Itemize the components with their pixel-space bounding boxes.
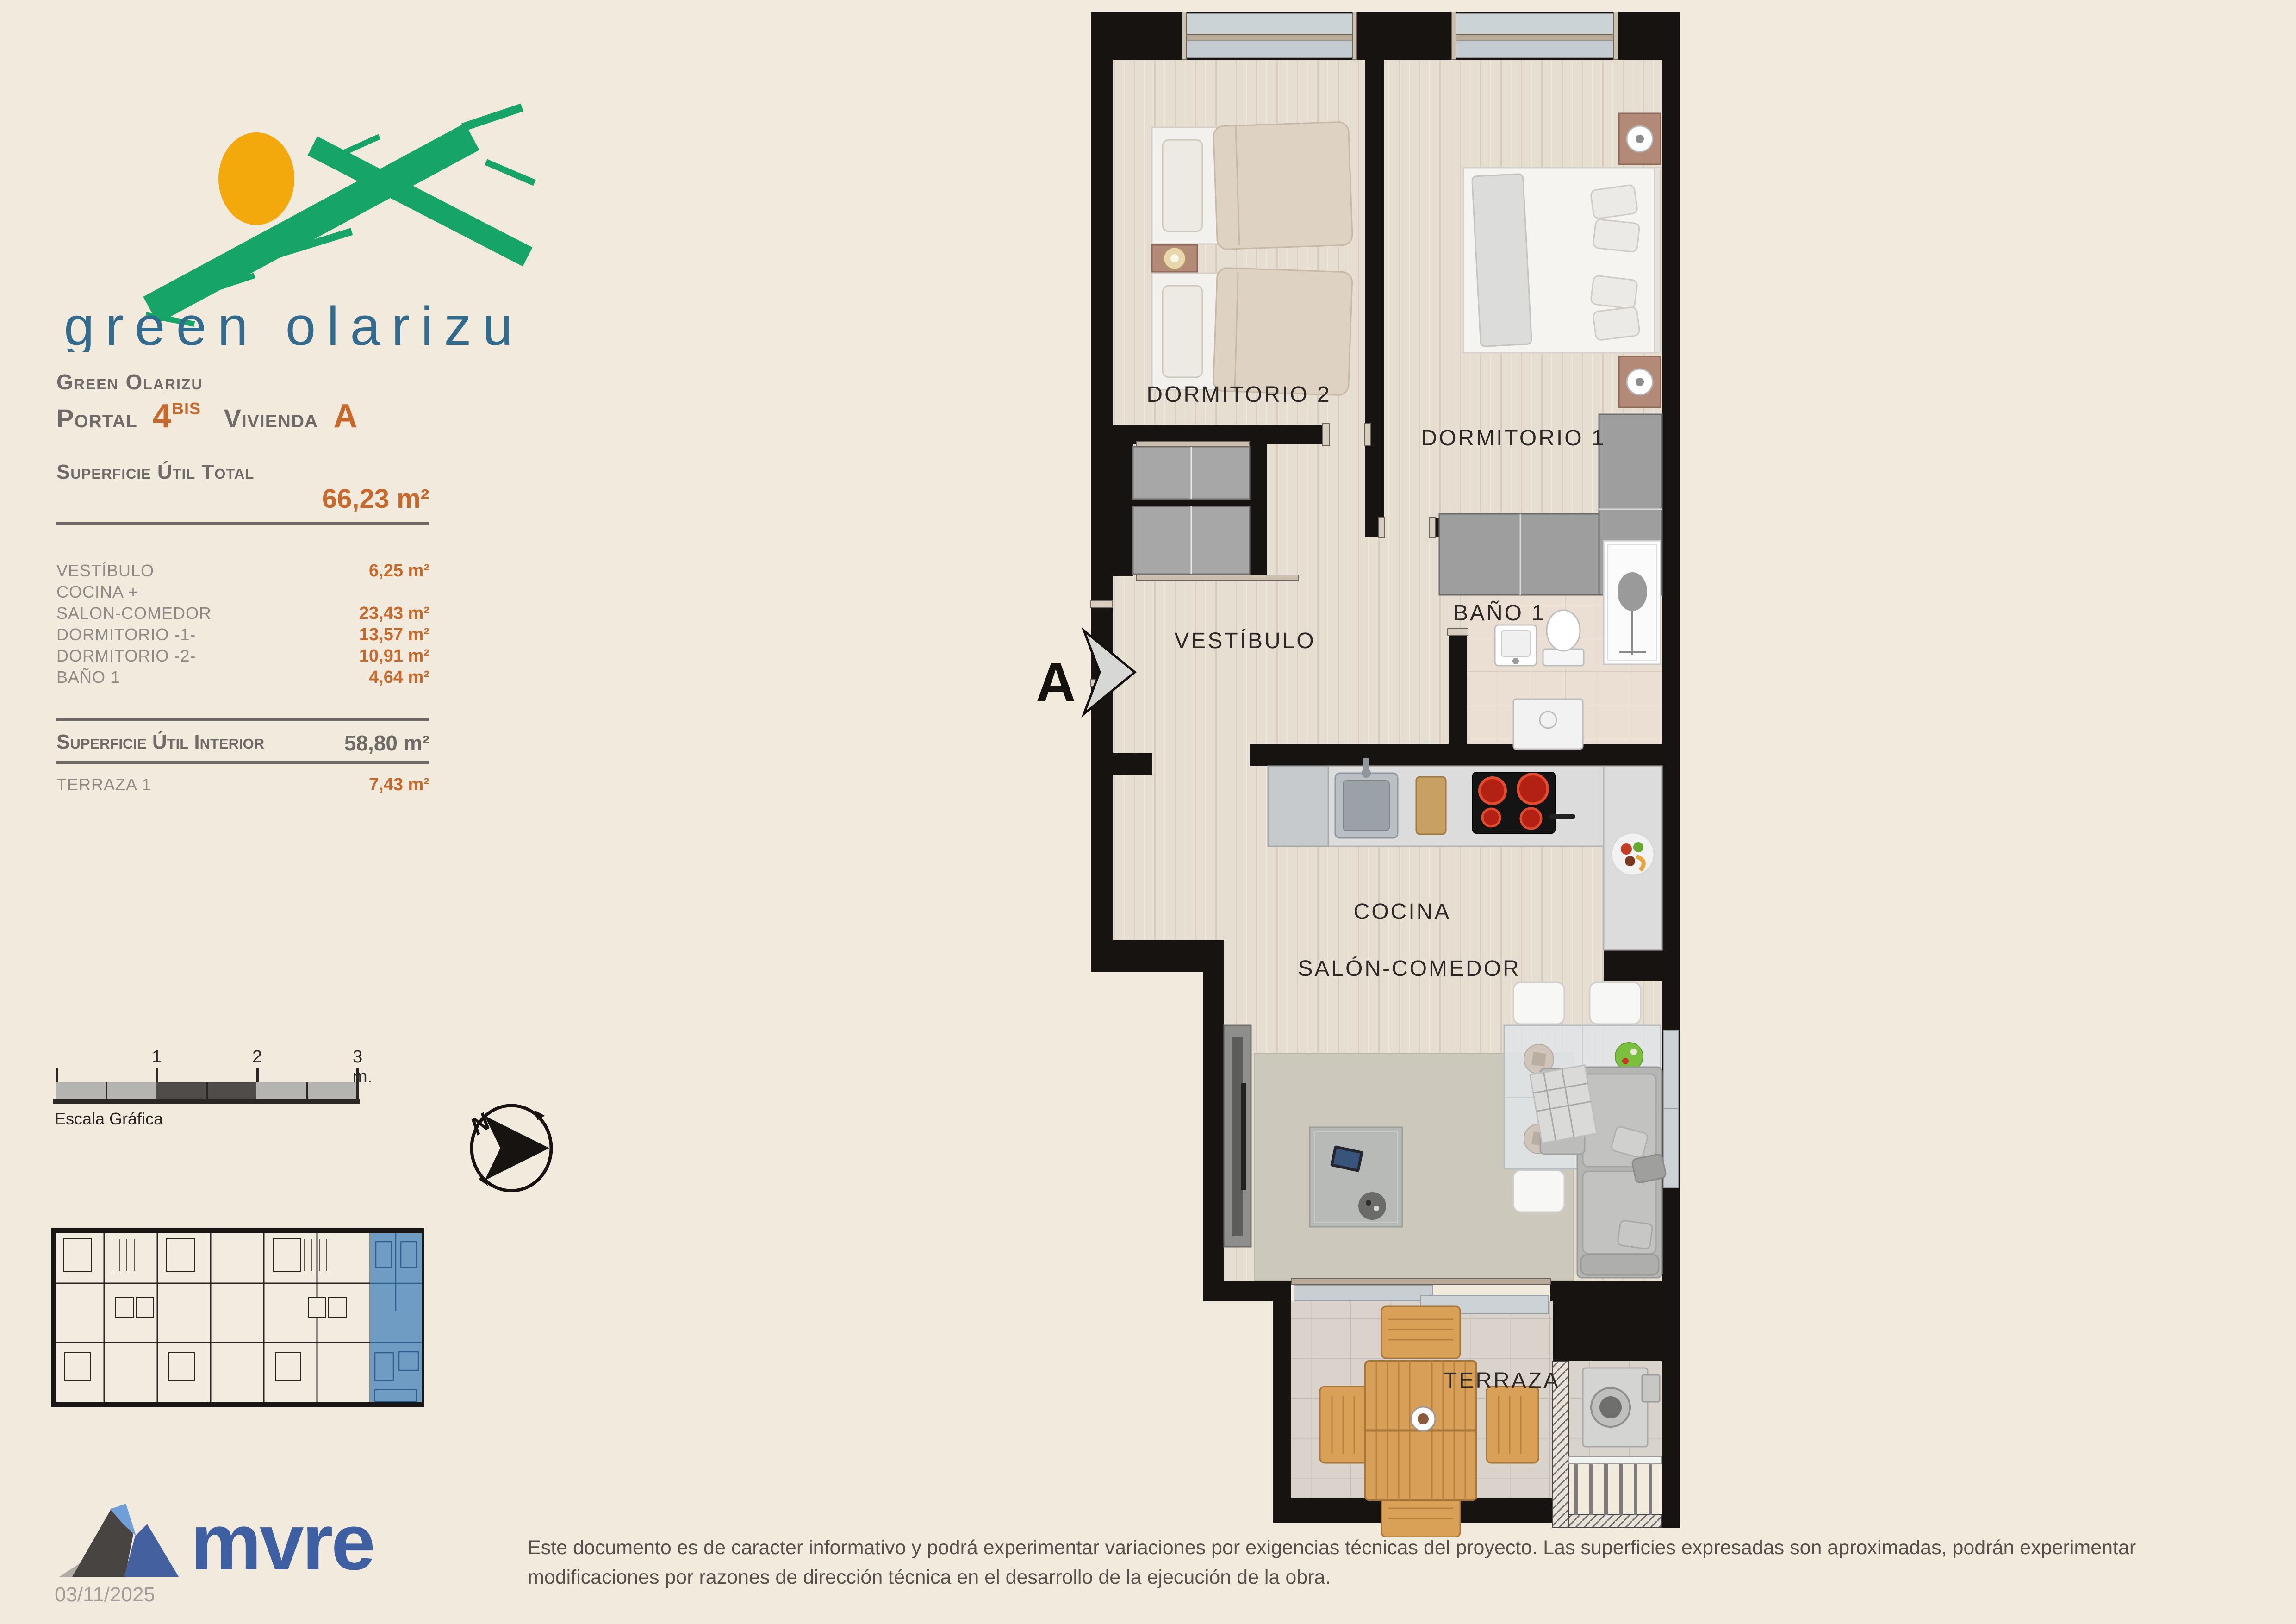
portal-number: 4 xyxy=(153,398,172,435)
floor-plan: A DORMITORIO 2 DORMITORIO 1 VESTÍBULO BA… xyxy=(1032,5,1680,1537)
bed-single-1 xyxy=(1152,122,1353,250)
nightstand xyxy=(1619,113,1661,164)
oven-appliance xyxy=(1513,699,1583,749)
scale-baseline xyxy=(53,1099,360,1104)
logo-brush-icon xyxy=(146,107,535,324)
scale-subtick xyxy=(306,1082,308,1099)
highlighted-unit xyxy=(370,1233,422,1402)
area-row-label: COCINA + xyxy=(56,582,138,602)
terrace-railing xyxy=(1569,1456,1662,1515)
area-row-value: 13,57 m² xyxy=(359,625,429,645)
area-row: COCINA + xyxy=(56,582,429,604)
logo-wordmark: green olarizu xyxy=(64,296,524,352)
fruit-plate xyxy=(1612,833,1654,875)
scale-subtick xyxy=(206,1082,208,1099)
label-terraza: TERRAZA xyxy=(1444,1368,1560,1393)
interior-surface-row: Superficie Útil Interior 58,80 m² xyxy=(56,731,429,752)
scale-tick-label: 3 m. xyxy=(353,1047,372,1087)
area-row: SALON-COMEDOR23,43 m² xyxy=(56,604,429,625)
surface-total-value: 66,23 m² xyxy=(56,483,429,514)
label-vestibulo: VESTÍBULO xyxy=(1174,629,1315,653)
bathroom-sink xyxy=(1495,625,1537,666)
washing-machine xyxy=(1583,1368,1660,1447)
north-compass: N xyxy=(465,1102,555,1192)
surface-total-heading: Superficie Útil Total xyxy=(56,461,254,484)
compass-needle-icon xyxy=(485,1116,549,1181)
nightstand xyxy=(1152,245,1197,272)
mvre-wordmark: mvre xyxy=(191,1504,373,1580)
date-stamp: 03/11/2025 xyxy=(55,1583,155,1606)
portal-suffix: BIS xyxy=(172,399,201,418)
unit-title: Portal 4BIS Vivienda A xyxy=(56,397,358,435)
vivienda-label: Vivienda xyxy=(224,404,318,433)
coffee-table xyxy=(1310,1127,1402,1227)
area-row-value: 10,91 m² xyxy=(359,646,429,666)
floor-overview-plan xyxy=(51,1228,424,1407)
label-salon-comedor: SALÓN-COMEDOR xyxy=(1298,956,1520,981)
nightstand xyxy=(1619,356,1661,407)
area-row-label: BAÑO 1 xyxy=(56,668,120,687)
area-row: DORMITORIO -2-10,91 m² xyxy=(56,646,429,668)
bed-single-2 xyxy=(1152,268,1352,395)
divider-line xyxy=(56,761,429,764)
area-row-label: SALON-COMEDOR xyxy=(56,604,212,623)
area-row: DORMITORIO -1-13,57 m² xyxy=(56,625,429,646)
scale-subtick xyxy=(106,1082,107,1099)
section-marker-letter: A xyxy=(1036,651,1076,713)
interior-value: 58,80 m² xyxy=(344,731,429,756)
disclaimer-text: Este documento es de caracter informativ… xyxy=(528,1533,2259,1592)
terrace-row: TERRAZA 1 7,43 m² xyxy=(56,775,429,796)
bedroom1-window xyxy=(1451,12,1618,59)
terrace-edge-hatch xyxy=(1569,1515,1662,1528)
area-row-value: 23,43 m² xyxy=(359,604,429,624)
terrace-value: 7,43 m² xyxy=(369,775,429,795)
tv-unit xyxy=(1224,1025,1251,1247)
mvre-logo: mvre xyxy=(56,1504,407,1580)
divider-line xyxy=(56,718,429,721)
scale-tick-label: 1 xyxy=(152,1047,162,1067)
area-row-label: DORMITORIO -1- xyxy=(56,625,196,644)
project-title: Green Olarizu xyxy=(56,369,203,394)
bed-double xyxy=(1463,168,1661,353)
label-cocina: COCINA xyxy=(1354,899,1451,924)
bedroom2-window xyxy=(1182,12,1357,59)
divider-line xyxy=(56,522,429,525)
label-dormitorio-1: DORMITORIO 1 xyxy=(1421,426,1605,450)
scale-tick-label: 2 xyxy=(252,1047,262,1067)
toilet xyxy=(1543,610,1584,666)
scale-tick xyxy=(356,1068,359,1099)
scale-caption: Escala Gráfica xyxy=(55,1109,163,1129)
label-dormitorio-2: DORMITORIO 2 xyxy=(1146,382,1331,407)
cutting-board xyxy=(1416,777,1446,834)
terrace-label: TERRAZA 1 xyxy=(56,775,151,794)
area-row-label: DORMITORIO -2- xyxy=(56,646,196,666)
area-row: VESTÍBULO6,25 m² xyxy=(56,561,429,582)
portal-label: Portal xyxy=(56,404,137,433)
label-bano-1: BAÑO 1 xyxy=(1453,600,1546,625)
area-row-value: 4,64 m² xyxy=(369,668,429,687)
shower xyxy=(1604,541,1661,664)
area-row: BAÑO 14,64 m² xyxy=(56,668,429,689)
vivienda-letter: A xyxy=(333,398,358,435)
logo-sun-icon xyxy=(218,132,294,225)
area-row-label: VESTÍBULO xyxy=(56,561,154,581)
interior-label: Superficie Útil Interior xyxy=(56,731,264,754)
green-olarizu-logo: green olarizu xyxy=(56,93,546,352)
area-row-value: 6,25 m² xyxy=(369,561,429,581)
graphic-scale: 1 2 3 m. Escala Gráfica xyxy=(55,1047,369,1126)
